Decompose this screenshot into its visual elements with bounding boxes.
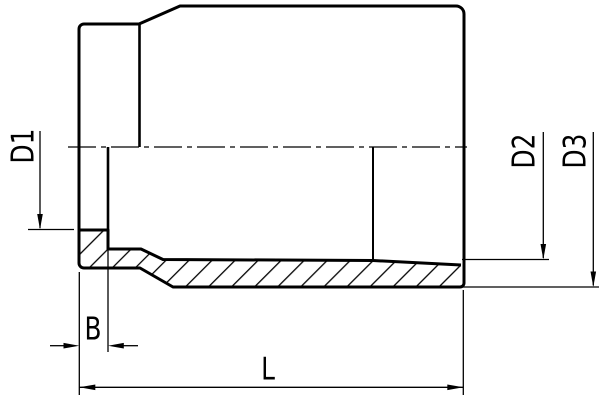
technical-drawing-canvas: D1 D2 D3 B L (0, 0, 600, 400)
section-hatch (79, 230, 461, 287)
d2-dimension-label: D2 (510, 134, 541, 169)
l-arrowhead-left (79, 385, 95, 391)
d1-dimension-label: D1 (9, 129, 40, 164)
l-dimension-label: L (261, 355, 275, 386)
d2-arrowhead (541, 244, 547, 260)
l-arrowhead-right (447, 385, 463, 391)
d3-arrowhead (591, 272, 597, 288)
b-arrowhead-right (108, 343, 124, 349)
b-arrowhead-left (64, 343, 80, 349)
d1-arrowhead (37, 214, 43, 230)
b-dimension-label: B (84, 315, 101, 346)
d3-dimension-label: D3 (561, 134, 592, 169)
